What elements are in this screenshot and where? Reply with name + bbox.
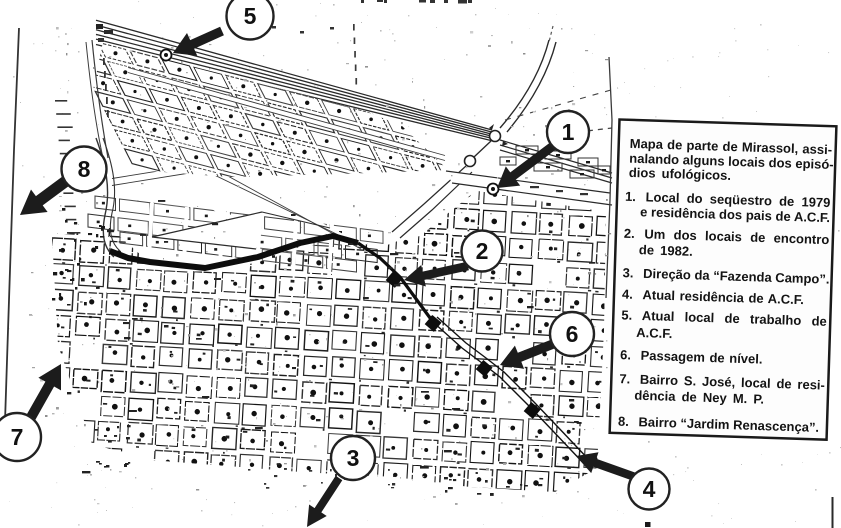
svg-text:1: 1 xyxy=(562,119,575,145)
svg-text:dios ufológicos.: dios ufológicos. xyxy=(629,165,732,183)
svg-text:4.: 4. xyxy=(622,286,633,301)
svg-text:2: 2 xyxy=(476,238,489,264)
svg-text:6.: 6. xyxy=(620,347,631,362)
svg-text:7.: 7. xyxy=(619,371,630,386)
svg-text:7: 7 xyxy=(11,424,24,450)
svg-text:5: 5 xyxy=(244,3,257,29)
svg-text:de 1982.: de 1982. xyxy=(639,242,693,259)
svg-text:5.: 5. xyxy=(621,307,632,322)
svg-text:2.: 2. xyxy=(624,226,635,241)
svg-text:8.: 8. xyxy=(618,414,629,429)
svg-text:4: 4 xyxy=(643,476,656,502)
svg-text:3.: 3. xyxy=(622,265,633,280)
svg-text:A.C.F.: A.C.F. xyxy=(636,325,673,341)
svg-text:3: 3 xyxy=(347,445,360,471)
svg-text:8: 8 xyxy=(78,156,91,182)
svg-text:1.: 1. xyxy=(625,189,636,204)
svg-text:6: 6 xyxy=(566,321,579,347)
